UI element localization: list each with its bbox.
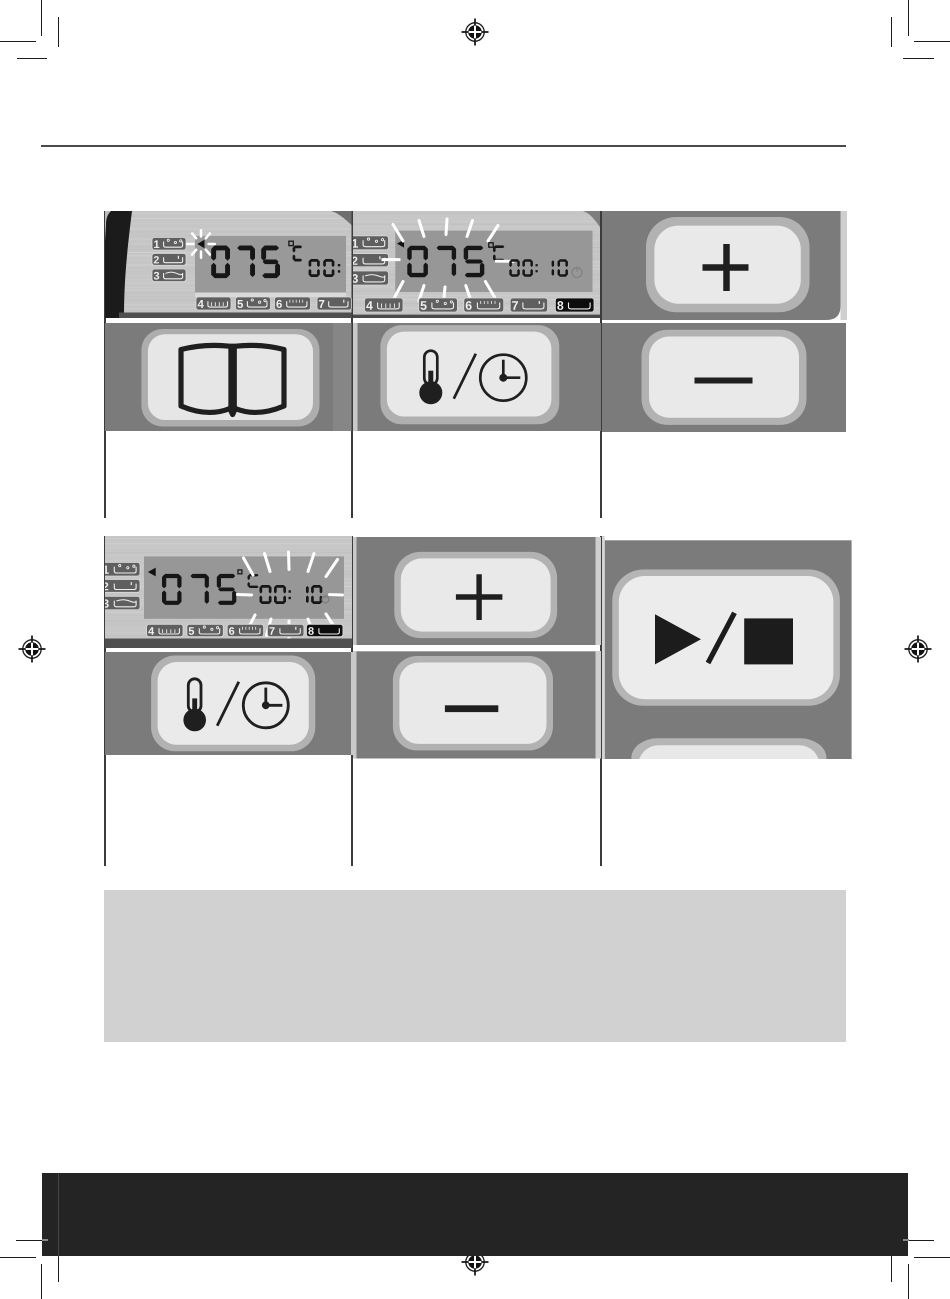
svg-text:8: 8 <box>308 626 314 638</box>
svg-text:2: 2 <box>153 255 159 266</box>
svg-text:6: 6 <box>229 626 235 638</box>
svg-text:5: 5 <box>420 299 427 313</box>
svg-text:3: 3 <box>153 271 159 283</box>
svg-text:1: 1 <box>105 563 109 577</box>
svg-text:7: 7 <box>511 299 518 313</box>
svg-text:8: 8 <box>556 299 563 313</box>
svg-text:4: 4 <box>365 299 372 313</box>
svg-text:1: 1 <box>353 237 358 251</box>
svg-text:1: 1 <box>153 239 159 251</box>
svg-text:5: 5 <box>237 299 244 311</box>
svg-text:3: 3 <box>105 597 109 611</box>
svg-text:2: 2 <box>353 255 358 268</box>
svg-text:7: 7 <box>318 299 324 311</box>
svg-text:5: 5 <box>188 626 194 638</box>
svg-text:6: 6 <box>276 299 282 311</box>
svg-text:4: 4 <box>148 626 154 638</box>
svg-text:6: 6 <box>465 299 472 313</box>
svg-text:7: 7 <box>269 626 275 638</box>
svg-text:4: 4 <box>197 299 204 311</box>
svg-text:3: 3 <box>353 272 358 286</box>
svg-text:2: 2 <box>105 581 109 593</box>
